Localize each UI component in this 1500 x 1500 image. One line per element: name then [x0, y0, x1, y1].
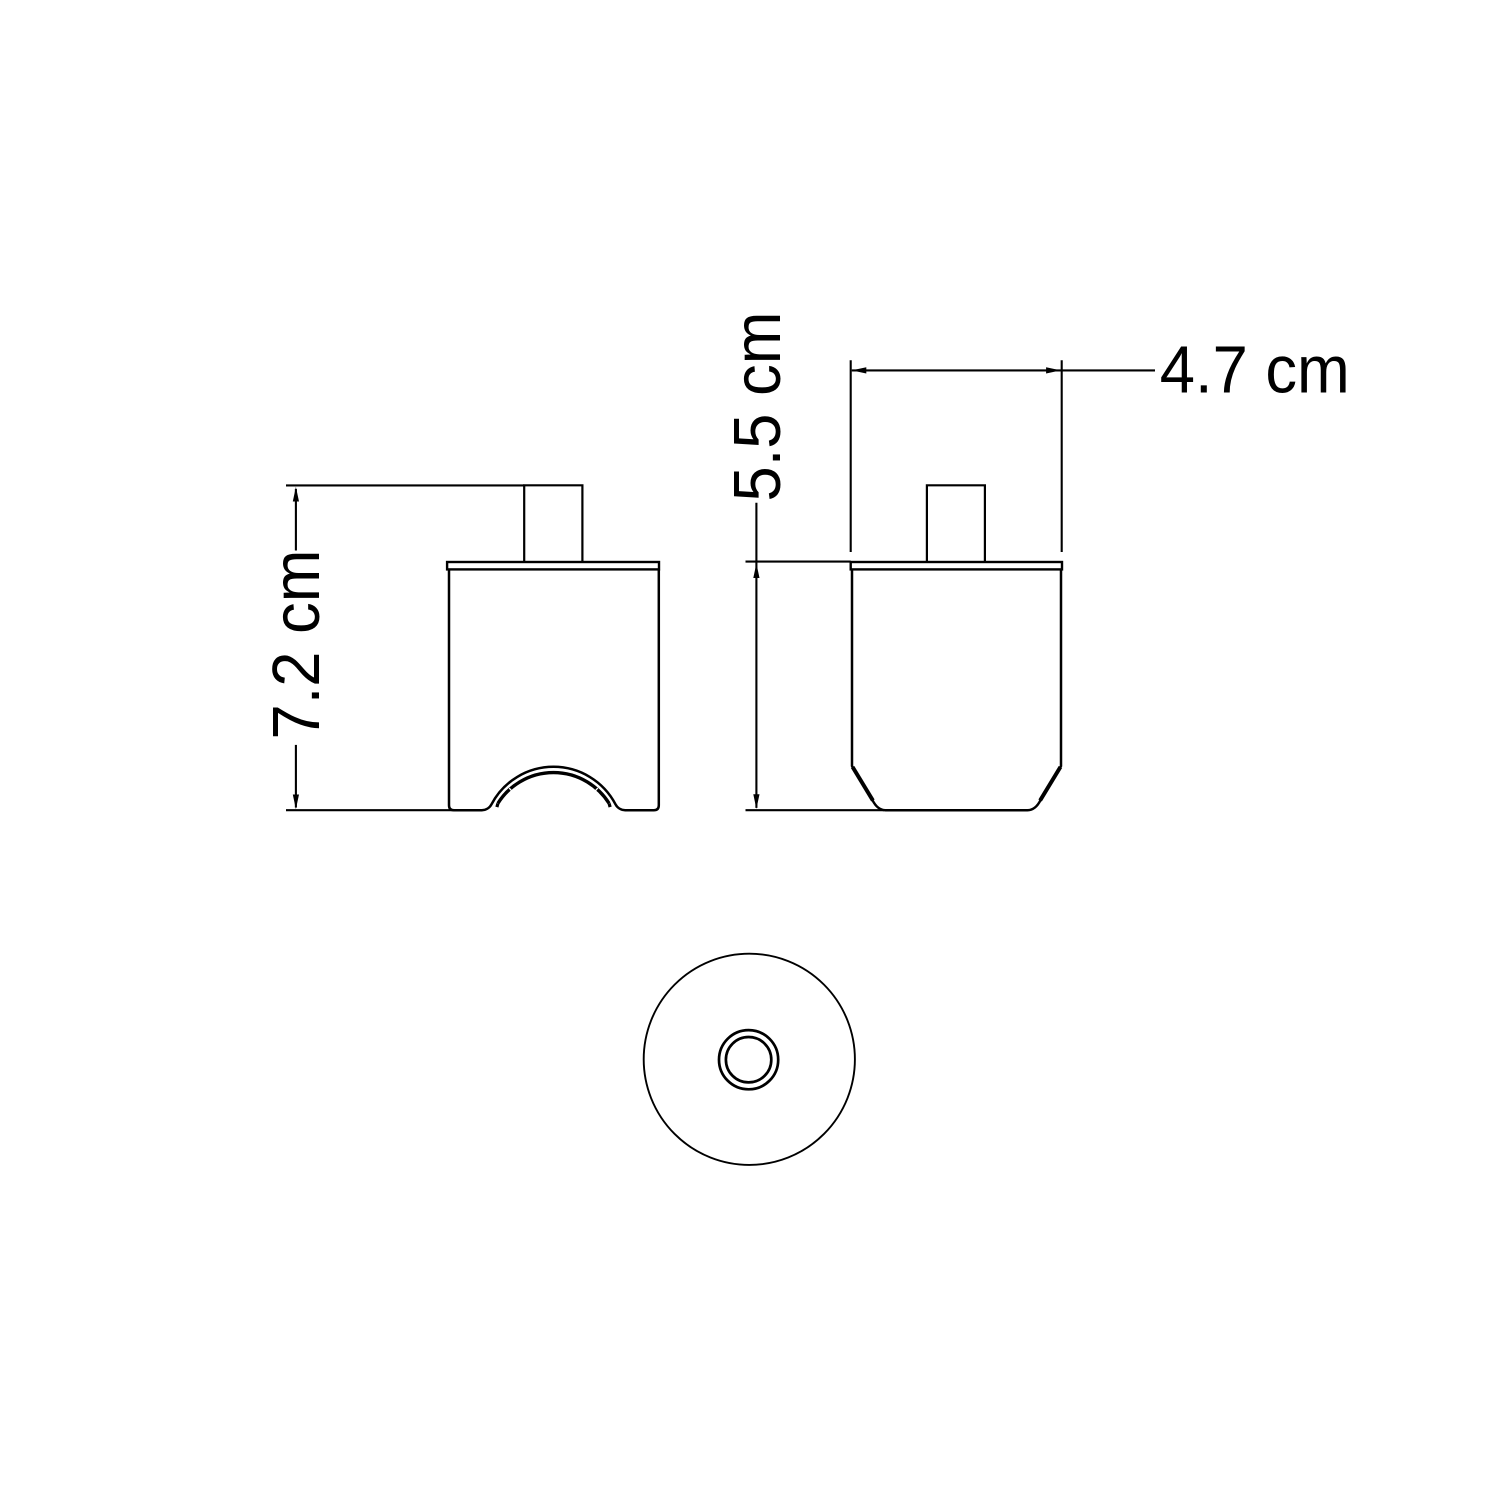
- svg-text:4.7 cm: 4.7 cm: [1160, 333, 1350, 408]
- svg-text:7.2 cm: 7.2 cm: [259, 550, 334, 740]
- svg-text:5.5 cm: 5.5 cm: [720, 312, 795, 502]
